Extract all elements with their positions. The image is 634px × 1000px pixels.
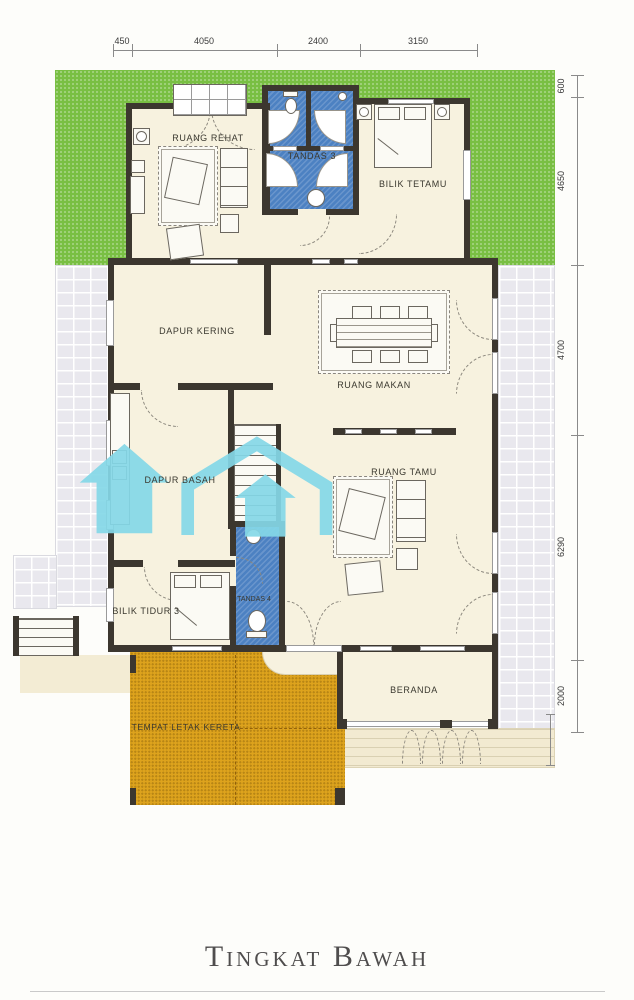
dimension-label: 4650	[556, 171, 566, 191]
pillow	[200, 575, 222, 588]
window	[463, 150, 471, 200]
dimension-tick	[477, 44, 478, 57]
wall-post	[440, 720, 452, 728]
dining-chair	[380, 350, 400, 363]
lamp-icon	[136, 131, 147, 142]
sofa	[220, 148, 248, 208]
pillow	[378, 107, 400, 120]
dining-chair	[352, 350, 372, 363]
driveway-apron	[20, 655, 130, 693]
wall-post	[488, 719, 498, 729]
dining-chair	[408, 350, 428, 363]
planter-box	[173, 84, 247, 116]
carpark-dashed-line-h	[235, 728, 341, 729]
tiled-path-right	[498, 265, 555, 730]
door-gap	[298, 209, 326, 215]
dimension-tick	[571, 265, 584, 266]
media-console	[130, 176, 145, 214]
pillow	[404, 107, 426, 120]
window	[360, 646, 392, 651]
room-label-bilik-tidur-3: BILIK TIDUR 3	[112, 606, 179, 616]
room-label-bilik-tetamu: BILIK TETAMU	[379, 179, 447, 189]
window	[190, 259, 238, 264]
dimension-line-top	[113, 50, 477, 51]
shower-head-icon	[338, 92, 347, 101]
dimension-label: 2400	[308, 36, 328, 46]
room-label-ruang-rehat: RUANG REHAT	[172, 133, 243, 143]
dimension-label: 6290	[556, 537, 566, 557]
side-table	[396, 548, 418, 570]
toilet-tank	[283, 91, 298, 97]
plan-title: Tingkat Bawah	[100, 940, 534, 974]
wall-post	[335, 788, 345, 805]
sofa	[396, 480, 426, 542]
room-label-beranda: BERANDA	[390, 685, 438, 695]
wall	[108, 258, 498, 265]
wall	[264, 258, 271, 335]
lamp-icon	[359, 107, 369, 117]
dimension-tick	[571, 75, 584, 76]
carpark-walkway-notch	[262, 652, 346, 675]
pillow	[174, 575, 196, 588]
toilet-base	[246, 631, 267, 638]
lamp-icon	[437, 107, 447, 117]
wall-post	[130, 788, 136, 805]
door-gap	[140, 383, 178, 390]
armchair	[166, 224, 204, 260]
tv-unit	[131, 160, 145, 173]
dimension-tick	[546, 714, 555, 715]
dimension-label: 2000	[556, 686, 566, 706]
watermark-logo	[78, 432, 348, 562]
window	[380, 429, 397, 434]
room-label-dapur-kering: DAPUR KERING	[159, 326, 235, 336]
toilet-icon	[248, 610, 266, 632]
window	[172, 646, 222, 651]
window	[312, 259, 330, 264]
window	[344, 259, 358, 264]
dimension-tick	[132, 44, 133, 57]
floor-plan: RUANG REHAT TANDAS 3 BILIK TETAMU DAPUR …	[0, 0, 634, 1000]
beranda-edge	[345, 721, 493, 727]
toilet-icon	[285, 98, 297, 114]
tiled-path-left-ext	[13, 555, 57, 609]
dimension-label: 4050	[194, 36, 214, 46]
room-label-ruang-tamu: RUANG TAMU	[371, 467, 437, 477]
main-entrance-door	[286, 645, 342, 652]
dimension-label: 3150	[408, 36, 428, 46]
room-label-tandas-4: TANDAS 4	[237, 596, 271, 603]
dimension-label: 4700	[556, 340, 566, 360]
dimension-tick	[277, 44, 278, 57]
wall	[306, 85, 311, 151]
footer-rule	[30, 991, 605, 992]
wash-basin-icon	[307, 189, 325, 207]
dining-table	[336, 318, 432, 348]
wall-post	[337, 719, 347, 729]
dimension-tick	[571, 435, 584, 436]
wall-post	[73, 616, 79, 656]
dimension-label: 450	[114, 36, 129, 46]
dimension-tick	[546, 765, 555, 766]
window	[420, 646, 465, 651]
dimension-tick	[571, 660, 584, 661]
armchair	[344, 560, 383, 596]
dimension-tick	[571, 97, 584, 98]
wall-post	[13, 616, 19, 656]
dimension-tick	[360, 44, 361, 57]
dimension-line-right	[577, 75, 578, 732]
room-label-tandas-3: TANDAS 3	[288, 151, 336, 161]
room-label-dapur-basah: DAPUR BASAH	[144, 475, 215, 485]
wall-post	[130, 655, 136, 673]
room-label-ruang-makan: RUANG MAKAN	[337, 380, 411, 390]
entry-steps	[15, 618, 79, 656]
window	[106, 588, 114, 622]
room-label-tempat-letak-kereta: TEMPAT LETAK KERETA	[132, 722, 241, 732]
window	[106, 300, 114, 346]
extent-bracket	[550, 714, 551, 766]
dimension-label: 600	[556, 78, 566, 93]
wall	[108, 383, 273, 390]
wall	[492, 652, 498, 723]
wall	[337, 652, 343, 723]
coffee-table	[220, 214, 239, 233]
dimension-tick	[571, 732, 584, 733]
window	[415, 429, 432, 434]
